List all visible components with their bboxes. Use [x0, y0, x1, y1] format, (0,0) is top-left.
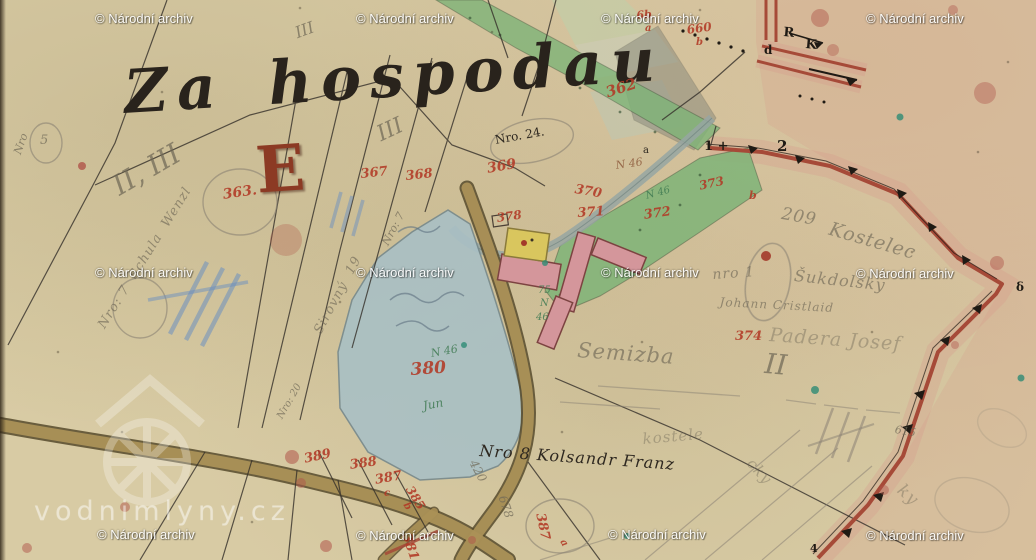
cadastral-map-scan: Za hospodau E vodnimlyny.cz 362363.36736…: [0, 0, 1036, 560]
archive-watermark: © Národní archiv: [608, 527, 706, 542]
archive-watermark: © Národní archiv: [601, 11, 699, 26]
archive-watermark: © Národní archiv: [601, 265, 699, 280]
archive-watermark: © Národní archiv: [95, 11, 193, 26]
archive-watermark: © Národní archiv: [866, 11, 964, 26]
archive-watermark: © Národní archiv: [95, 265, 193, 280]
archive-watermark: © Národní archiv: [356, 528, 454, 543]
archive-watermark: © Národní archiv: [356, 265, 454, 280]
archive-watermark: © Národní archiv: [356, 11, 454, 26]
archive-watermark: © Národní archiv: [866, 528, 964, 543]
archive-watermark: © Národní archiv: [856, 266, 954, 281]
archive-watermark-layer: © Národní archiv© Národní archiv© Národn…: [0, 0, 1036, 560]
archive-watermark: © Národní archiv: [97, 527, 195, 542]
